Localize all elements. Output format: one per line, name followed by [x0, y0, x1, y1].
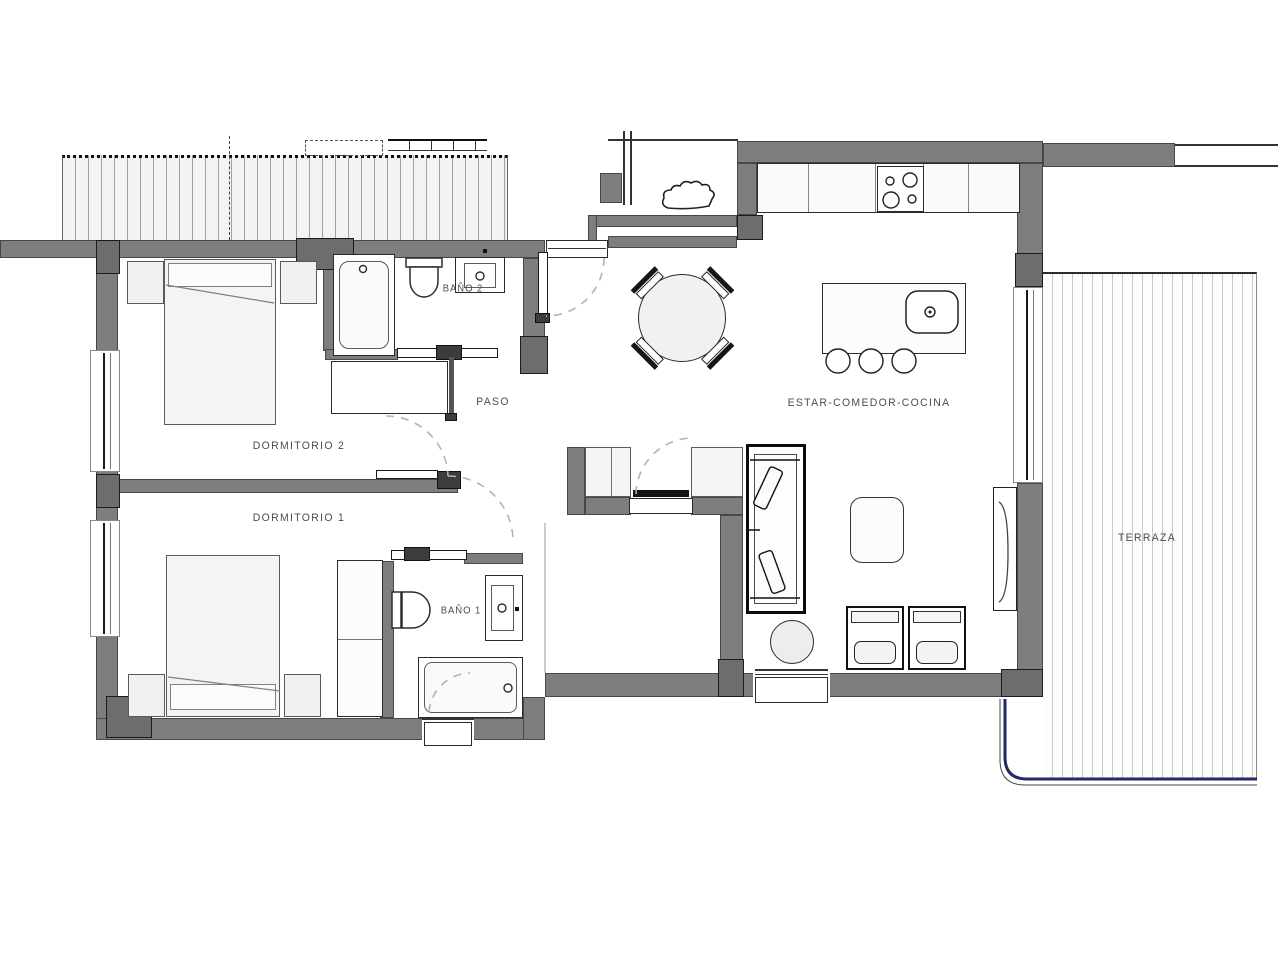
- entry-threshold-line: [548, 248, 606, 249]
- toilet-bowl: [410, 267, 438, 297]
- coffee-table: [850, 497, 904, 563]
- wall-segment: [720, 515, 743, 673]
- toilet-tank: [406, 258, 442, 267]
- wardrobe-divider: [338, 639, 382, 640]
- window-line: [755, 674, 828, 675]
- window: [90, 520, 120, 637]
- wall-segment: [1043, 143, 1175, 167]
- hall-cabinet: [331, 361, 448, 414]
- wall-segment: [596, 215, 737, 227]
- window-sill-box: [424, 722, 472, 746]
- terrace-sliding-window: [1013, 287, 1043, 483]
- wall-segment: [737, 141, 1043, 163]
- entry-threshold: [546, 240, 608, 258]
- room-label-bano-1: BAÑO 1: [441, 606, 482, 617]
- door-swing-arc: [546, 258, 604, 316]
- closet-cell: [691, 447, 743, 497]
- door-swing-arc: [636, 438, 693, 494]
- door-leaf: [633, 490, 689, 497]
- closet-cell: [585, 447, 631, 497]
- wall-segment: [608, 236, 737, 248]
- toilet-bowl: [402, 592, 430, 628]
- entry-door-leaf: [538, 252, 548, 316]
- room-label-dormitorio-1: DORMITORIO 1: [253, 512, 345, 524]
- terrace-decking: [1043, 272, 1257, 779]
- column: [737, 215, 763, 240]
- wall-segment: [464, 553, 523, 564]
- wall-segment: [691, 497, 743, 515]
- wall-segment: [96, 718, 545, 740]
- counter-divider: [968, 164, 969, 212]
- sliding-door-handle: [404, 547, 430, 561]
- nightstand: [127, 261, 164, 304]
- column: [1001, 669, 1043, 697]
- door-pocket-foot: [445, 413, 457, 421]
- room-label-dormitorio-2: DORMITORIO 2: [253, 440, 345, 452]
- washbasin: [491, 585, 514, 631]
- counter-divider: [875, 164, 876, 212]
- tv-unit: [993, 487, 1017, 611]
- side-table: [770, 620, 814, 664]
- window: [90, 350, 120, 472]
- window-sill-box: [755, 677, 828, 703]
- wall-segment: [1017, 483, 1043, 673]
- dashed-guide-box: [305, 140, 383, 156]
- wall-extension-line: [1175, 165, 1278, 167]
- wall-segment: [118, 479, 458, 493]
- pergola-hatch-strip: [62, 155, 508, 240]
- wall-segment: [523, 697, 545, 740]
- entry-frame-line: [630, 131, 632, 205]
- door-threshold: [629, 498, 693, 514]
- vestibule-top-line: [608, 139, 738, 141]
- entry-decor: [663, 181, 714, 208]
- sliding-door: [376, 470, 438, 479]
- entry-frame-line: [623, 131, 625, 205]
- column: [1015, 253, 1043, 287]
- column: [520, 336, 548, 374]
- nightstand: [128, 674, 165, 717]
- wall-segment: [567, 447, 585, 515]
- door-swing-arc: [386, 416, 448, 476]
- bed-pillows: [168, 263, 272, 287]
- nightstand: [284, 674, 321, 717]
- floor-plan: DORMITORIO 2 DORMITORIO 1 BAÑO 2 BAÑO 1 …: [0, 0, 1280, 960]
- room-label-estar-comedor-cocina: ESTAR-COMEDOR-COCINA: [788, 397, 951, 409]
- bed-pillows: [170, 684, 276, 710]
- nightstand: [280, 261, 317, 304]
- sofa-seat: [754, 454, 797, 604]
- wall-segment: [0, 240, 545, 258]
- door-end-cap: [535, 313, 550, 323]
- wall-segment: [600, 173, 622, 203]
- closet-divider: [611, 448, 612, 496]
- sliding-door-handle: [437, 471, 461, 489]
- column: [96, 240, 120, 274]
- wall-extension-line: [1175, 144, 1278, 146]
- armchair: [846, 606, 904, 670]
- ticked-beam: [388, 139, 487, 151]
- shower-inner: [424, 662, 517, 713]
- room-label-terraza: TERRAZA: [1118, 532, 1176, 544]
- bathtub-inner: [339, 261, 389, 349]
- dashed-guide-line: [229, 136, 230, 240]
- column: [96, 474, 120, 508]
- wall-segment: [737, 163, 757, 215]
- room-label-bano-2: BAÑO 2: [443, 284, 484, 295]
- armchair: [908, 606, 966, 670]
- stove: [877, 166, 924, 212]
- door-pocket-rail: [449, 357, 454, 417]
- wall-segment: [585, 497, 631, 515]
- window-line: [755, 669, 828, 671]
- room-label-paso: PASO: [476, 396, 510, 408]
- counter-divider: [808, 164, 809, 212]
- kitchen-island: [822, 283, 966, 354]
- column: [718, 659, 744, 697]
